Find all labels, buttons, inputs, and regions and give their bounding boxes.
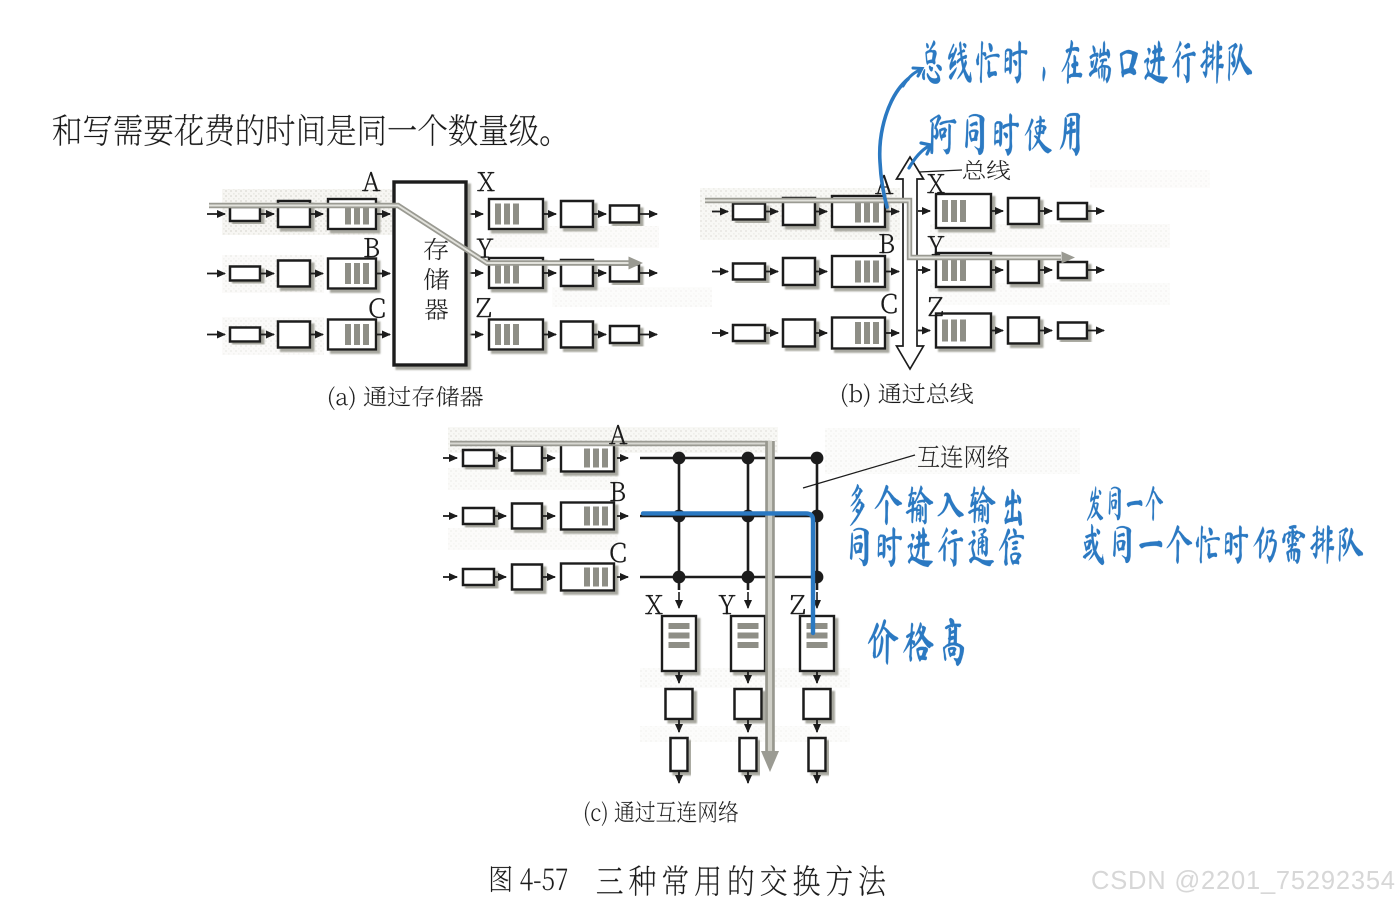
svg-text:CSDN @2201_75292354: CSDN @2201_75292354	[1091, 867, 1396, 895]
